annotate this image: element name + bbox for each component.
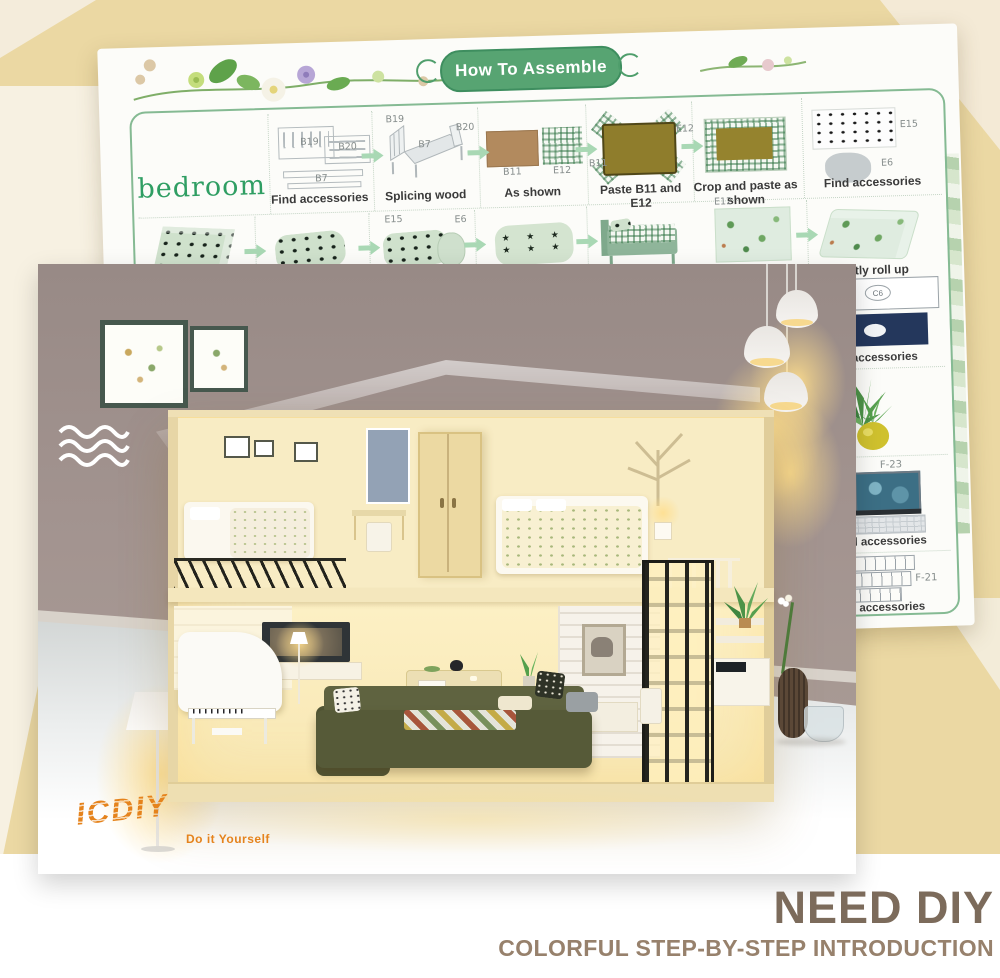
part-label: B11 — [503, 166, 522, 178]
bedside-table — [654, 522, 672, 540]
cup — [470, 676, 477, 681]
part-label: E12 — [553, 165, 571, 177]
grid-partition — [642, 560, 714, 792]
sheet-title: How To Assemble — [439, 45, 622, 92]
kitchen-shelf — [716, 636, 764, 643]
footer-title: NEED DIY — [0, 884, 994, 931]
triangle-blanket — [404, 710, 516, 730]
lamp-bulb-glow — [770, 402, 802, 410]
wavy-lines-icon — [58, 422, 130, 470]
part-label: B20 — [338, 141, 357, 153]
bed-pillow — [190, 507, 220, 520]
bed-leg — [672, 254, 675, 264]
laptop-screen — [854, 471, 921, 513]
part-label: B19 — [300, 136, 319, 148]
vase-shadow — [776, 738, 846, 746]
floorlamp-base — [141, 846, 175, 852]
art-animal — [591, 637, 613, 657]
part-label: E15 — [384, 214, 402, 226]
window — [366, 428, 410, 504]
desk — [352, 510, 406, 516]
palm-plant — [720, 568, 770, 628]
bed-pillow — [536, 499, 566, 511]
sofa-pillow — [566, 692, 598, 712]
desk-chair — [366, 522, 392, 552]
mini-wall-art — [254, 440, 274, 457]
dollhouse — [168, 410, 774, 800]
mattress-center — [716, 127, 773, 161]
part-label: E6 — [881, 157, 893, 168]
part-label: F-21 — [915, 572, 937, 584]
tree-decal — [598, 420, 718, 506]
dot-fabric-shape — [811, 107, 896, 149]
piano-bench — [212, 728, 242, 735]
left-wall — [168, 410, 178, 800]
piano-keys — [188, 708, 276, 719]
bed-blanket — [230, 508, 310, 558]
part-label: B7 — [315, 173, 328, 184]
piano-leg — [192, 718, 195, 744]
stuffing-roll-shape — [437, 232, 466, 267]
mini-floorlamp-glow — [276, 620, 324, 668]
product-listing-image: How To Assemble bedroom B19 B20 B7 Find … — [0, 0, 1000, 978]
product-photo: ICDIY Do it Yourself — [38, 264, 856, 874]
brand-tagline: Do it Yourself — [186, 832, 270, 846]
footer-subtitle: COLORFUL STEP-BY-STEP INTRODUCTION — [0, 935, 994, 962]
part-label: E12 — [714, 196, 732, 208]
teapot — [450, 660, 463, 671]
cooktop — [716, 662, 746, 672]
sofa-pillow — [498, 696, 532, 710]
section-label: bedroom — [137, 170, 264, 205]
part-label: B19 — [385, 114, 404, 126]
part-label: B11 — [589, 158, 608, 170]
board-part-shape — [486, 130, 539, 168]
desk-leg — [354, 516, 356, 540]
brick-wall-art — [582, 624, 626, 676]
part-label: F-23 — [880, 459, 902, 471]
wall-frame-right — [190, 326, 248, 392]
scroll-ornament-right-icon — [618, 53, 643, 78]
fabric-part-shape — [542, 127, 583, 165]
wardrobe-handle — [440, 498, 444, 508]
mini-floorlamp-pole — [298, 644, 300, 704]
sofa-pillow — [535, 670, 566, 699]
lamp-bulb-glow — [781, 319, 813, 326]
assemble-badge: How To Assemble — [415, 45, 642, 92]
sofa-pillow — [333, 687, 361, 714]
laptop-keyboard — [849, 515, 926, 535]
cactus-fabric-shape — [714, 206, 792, 262]
lamp-bulb-glow — [750, 358, 784, 366]
wrapped-board-shape — [602, 122, 678, 176]
piano-leg — [264, 718, 267, 744]
step-caption: Find accessories — [270, 191, 370, 208]
part-label: E12 — [676, 123, 694, 135]
top-edge — [168, 410, 774, 417]
desk-leg — [402, 516, 404, 540]
part-label: E15 — [900, 119, 918, 131]
wall-frame-left — [100, 320, 188, 408]
bed-pillow — [502, 499, 532, 511]
part-label: E6 — [454, 214, 466, 225]
part-label: B7 — [418, 139, 431, 150]
scroll-ornament-left-icon — [416, 59, 441, 84]
footer-text-block: NEED DIY COLORFUL STEP-BY-STEP INTRODUCT… — [0, 884, 994, 962]
step-caption: Paste B11 and E12 — [587, 181, 694, 212]
dining-chair — [640, 688, 662, 724]
floral-decoration-top-right — [697, 44, 808, 81]
wardrobe-handle — [452, 498, 456, 508]
wardrobe — [418, 432, 482, 578]
step-caption: Crop and paste as shown — [689, 178, 802, 209]
star-pillow-shape: ★ ★ ★★ ★ ★ — [494, 222, 574, 267]
mini-wall-art — [224, 436, 250, 458]
glass-bowl — [804, 706, 844, 742]
mini-wall-art — [294, 442, 318, 462]
bed-blanket — [502, 506, 642, 568]
floral-decoration-top-left — [127, 40, 465, 108]
fruit-plate — [424, 666, 440, 672]
part-label: B20 — [456, 122, 475, 134]
grand-piano — [178, 632, 282, 712]
flower-blossom — [776, 594, 794, 608]
rolled-fabric-shape — [818, 209, 920, 259]
wardrobe-seam — [447, 434, 449, 572]
